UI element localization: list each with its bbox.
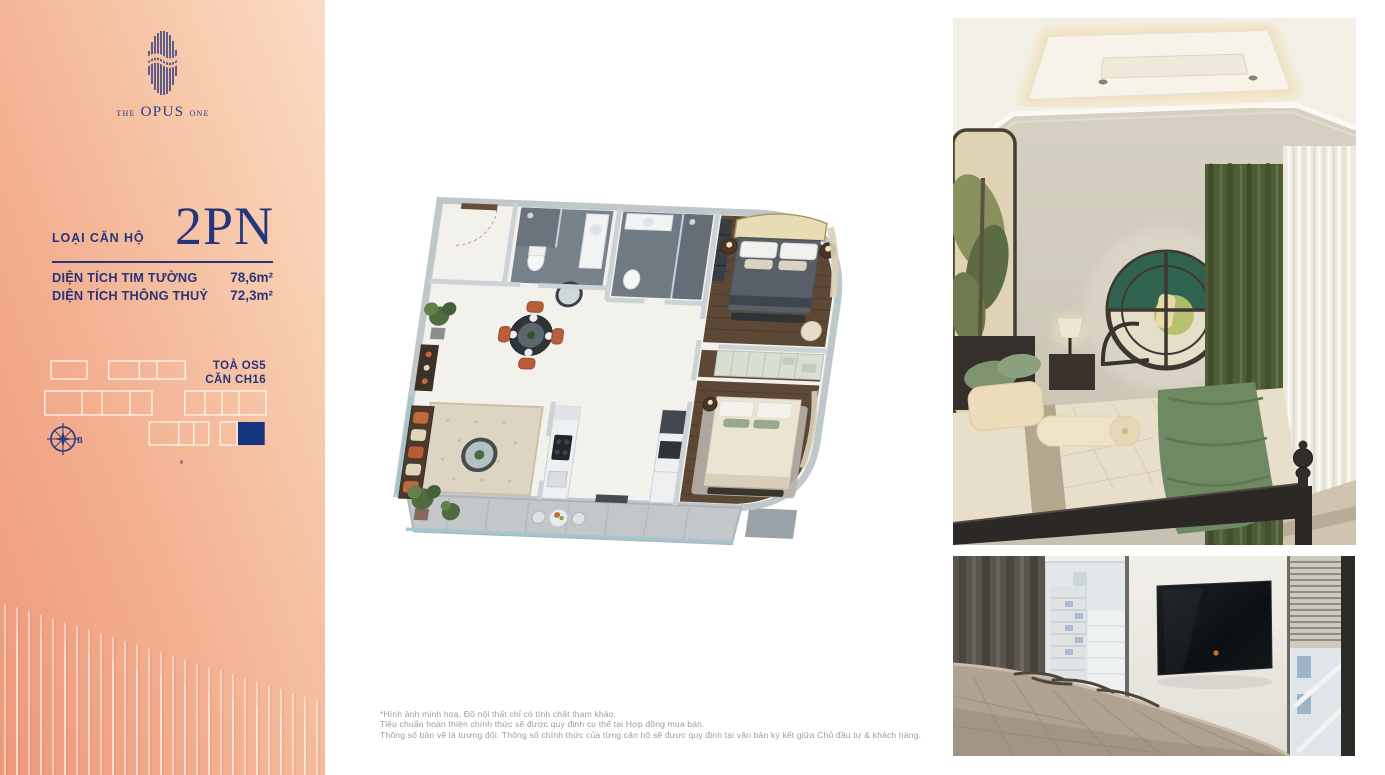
spec-value: 72,3m²: [230, 288, 273, 303]
bathroom-2: [611, 212, 713, 300]
photo-master-bedroom: [953, 18, 1356, 545]
unit-type-header: LOẠI CĂN HỘ 2PN: [52, 202, 274, 252]
unit-type-label: LOẠI CĂN HỘ: [52, 231, 145, 252]
logo-one: ONE: [190, 109, 210, 118]
opus-one-logo: THE OPUS ONE: [108, 30, 218, 121]
master-headboard: [734, 212, 828, 241]
brochure-page: THE OPUS ONE LOẠI CĂN HỘ 2PN DIỆN TÍCH T…: [0, 0, 1385, 775]
unit-type-value: 2PN: [175, 202, 274, 252]
disclaimer-line-1: *Hình ảnh minh hoạ. Đồ nội thất chỉ có t…: [380, 709, 980, 719]
bathroom-1: [511, 207, 614, 286]
ac-ledge: [745, 508, 797, 539]
compass-icon: B: [46, 419, 86, 459]
photo-bedroom-tv: [953, 556, 1355, 756]
tv-standby-light: [1213, 650, 1218, 655]
logo-opus: OPUS: [141, 104, 185, 120]
divider-line: [52, 261, 273, 263]
logo-emblem-icon: [145, 30, 181, 96]
disclaimer-line-3: Thông số bản vẽ là tương đối. Thông số c…: [380, 730, 980, 740]
wardrobe: [698, 350, 824, 382]
area-specs: DIỆN TÍCH TIM TƯỜNG 78,6m² DIỆN TÍCH THÔ…: [52, 270, 273, 306]
window-blinds: [1287, 556, 1355, 756]
spec-label: DIỆN TÍCH THÔNG THUỶ: [52, 288, 208, 303]
logo-the: THE: [116, 109, 135, 118]
master-bedroom: [701, 212, 846, 348]
spec-row-net: DIỆN TÍCH THÔNG THUỶ 72,3m²: [52, 288, 273, 306]
compass-north-label: B: [77, 436, 83, 445]
spec-value: 78,6m²: [230, 270, 273, 285]
highlighted-unit: [238, 422, 265, 445]
logo-wordmark: THE OPUS ONE: [108, 103, 218, 121]
disclaimer-line-2: Tiêu chuẩn hoàn thiện chính thức sẽ được…: [380, 719, 980, 729]
floor-plan-render: [362, 178, 882, 578]
spec-row-gross: DIỆN TÍCH TIM TƯỜNG 78,6m²: [52, 270, 273, 288]
spec-label: DIỆN TÍCH TIM TƯỜNG: [52, 270, 197, 285]
disclaimer-text: *Hình ảnh minh hoạ. Đồ nội thất chỉ có t…: [380, 709, 980, 740]
